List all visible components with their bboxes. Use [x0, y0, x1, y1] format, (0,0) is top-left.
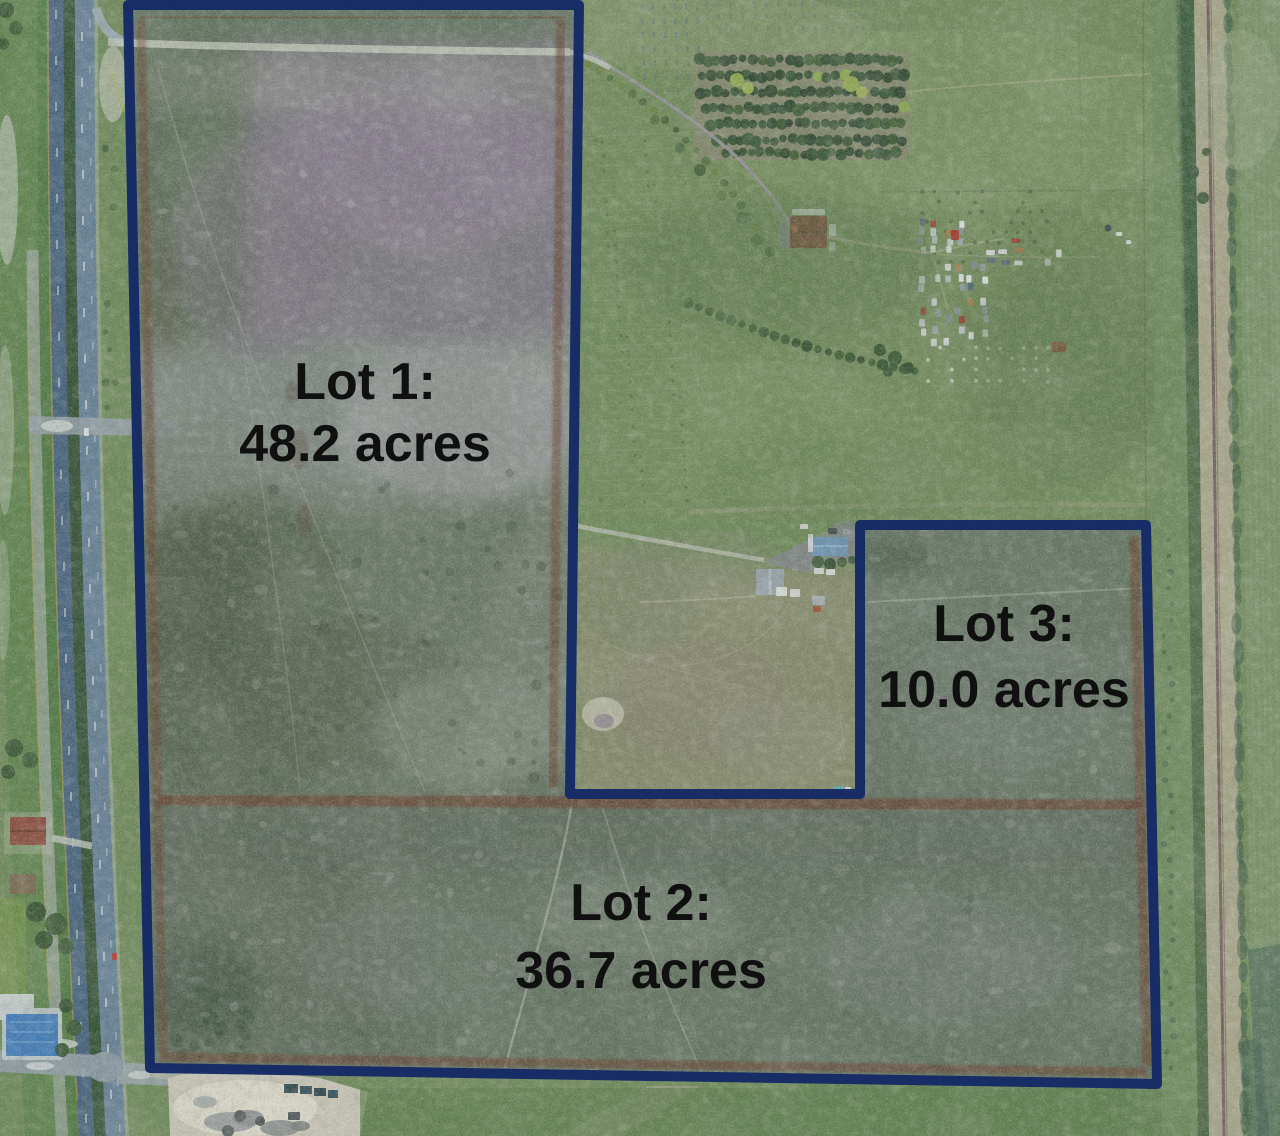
- svg-text:10.0 acres: 10.0 acres: [878, 661, 1130, 719]
- svg-text:36.7 acres: 36.7 acres: [515, 942, 767, 1000]
- svg-text:Lot 1:: Lot 1:: [294, 353, 436, 411]
- svg-text:Lot 3:: Lot 3:: [933, 595, 1075, 653]
- svg-text:48.2 acres: 48.2 acres: [239, 415, 491, 473]
- svg-text:Lot 2:: Lot 2:: [570, 874, 712, 932]
